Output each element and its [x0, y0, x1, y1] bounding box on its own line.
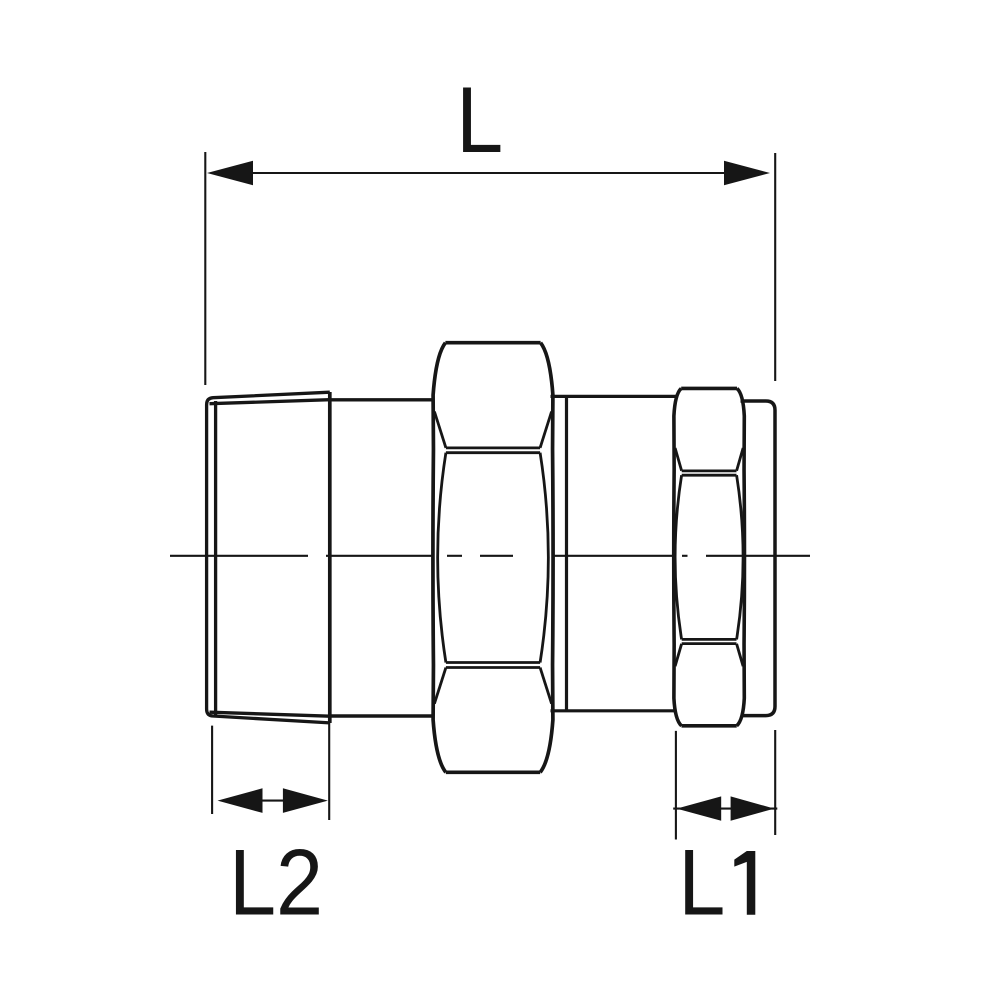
svg-text:L: L: [678, 829, 725, 934]
svg-text:L: L: [456, 67, 503, 172]
svg-text:L2: L2: [229, 829, 323, 934]
